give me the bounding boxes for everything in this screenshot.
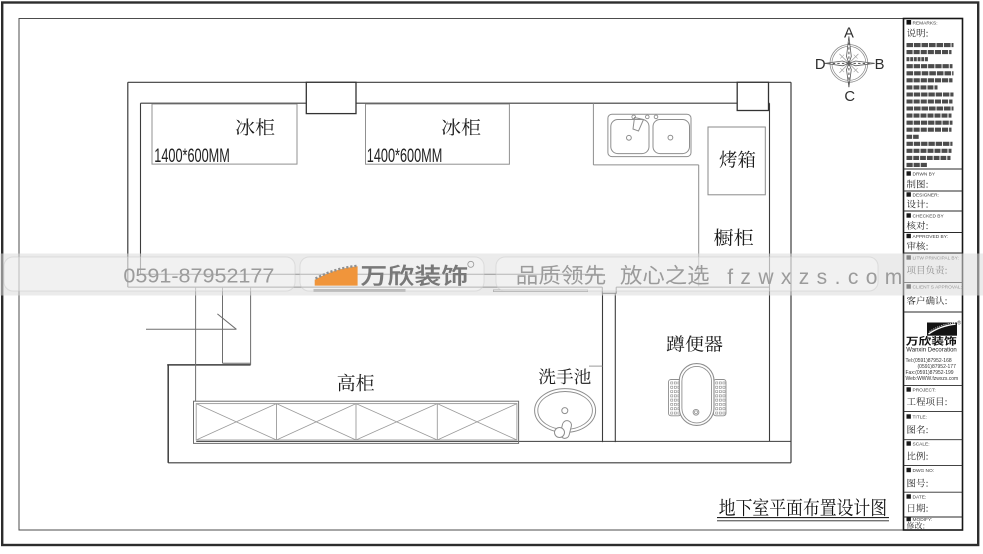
svg-text:(0591)87952-177: (0591)87952-177 bbox=[918, 364, 957, 370]
svg-text:TITLE:: TITLE: bbox=[913, 415, 927, 421]
svg-text:APPROVED BY:: APPROVED BY: bbox=[913, 234, 948, 240]
svg-text:B: B bbox=[875, 57, 885, 73]
svg-text:0591-87952177: 0591-87952177 bbox=[123, 266, 274, 288]
svg-text:Fax:(0591)87952-199: Fax:(0591)87952-199 bbox=[906, 370, 954, 376]
svg-text:PROJECT:: PROJECT: bbox=[913, 388, 936, 394]
svg-text:MODIFY:: MODIFY: bbox=[913, 517, 933, 523]
svg-text:1400*600MM: 1400*600MM bbox=[367, 145, 443, 167]
svg-text:1400*600MM: 1400*600MM bbox=[154, 145, 230, 167]
svg-text:SCALE:: SCALE: bbox=[913, 442, 930, 448]
svg-text:®: ® bbox=[957, 320, 961, 327]
svg-text:fzwxzs.com: fzwxzs.com bbox=[727, 266, 910, 289]
svg-text:CHECKED BY: CHECKED BY bbox=[913, 214, 945, 220]
svg-text:DESIGNER:: DESIGNER: bbox=[913, 193, 939, 199]
svg-text:A: A bbox=[844, 25, 854, 41]
svg-text:REMARKS:: REMARKS: bbox=[913, 20, 938, 26]
svg-text:DATE:: DATE: bbox=[913, 495, 927, 501]
svg-text:C: C bbox=[844, 89, 855, 105]
svg-text:DRWN BY: DRWN BY bbox=[913, 172, 936, 178]
svg-text:DWG NO:: DWG NO: bbox=[913, 468, 935, 474]
svg-text:Wanxin Decoration: Wanxin Decoration bbox=[906, 348, 956, 354]
svg-text:Web:WWW.fzwxzs.com: Web:WWW.fzwxzs.com bbox=[906, 376, 959, 382]
svg-text:D: D bbox=[815, 57, 826, 73]
